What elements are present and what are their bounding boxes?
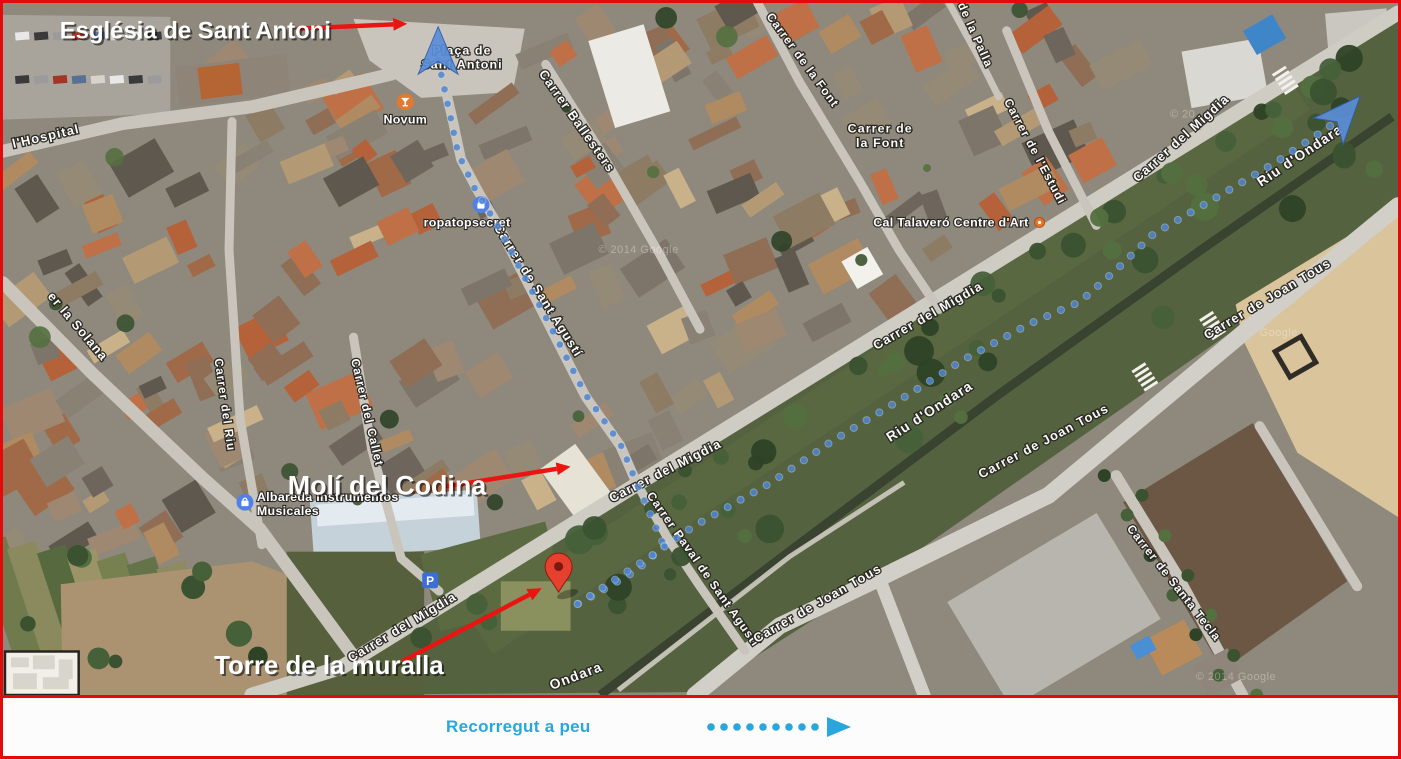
svg-text:P: P (426, 574, 434, 588)
svg-text:Carrer de: Carrer de (848, 122, 913, 136)
svg-text:Musicales: Musicales (257, 504, 319, 518)
drink-icon[interactable] (397, 93, 414, 110)
legend-bar: Recorregut a peu (3, 695, 1398, 756)
place-label-carrer-de-la-font: Carrer dela Font (848, 122, 913, 150)
overview-inset-map[interactable] (5, 652, 79, 695)
shopping-bag-icon[interactable] (236, 494, 253, 511)
svg-text:© 2014 Google: © 2014 Google (598, 244, 678, 256)
svg-text:Google: Google (1260, 327, 1298, 339)
map-viewport[interactable]: © 2014 Google© 20Google© 2014 Googlel'Ho… (3, 3, 1398, 695)
annotation-esglesia: Església de Sant Antoni (60, 18, 331, 45)
dotted-route-arrow-icon (703, 714, 863, 740)
svg-text:Cal Talaveró Centre d'Art: Cal Talaveró Centre d'Art (873, 215, 1028, 229)
gallery-dot-icon[interactable] (1035, 218, 1045, 228)
annotation-torre: Torre de la muralla (214, 652, 444, 680)
svg-text:© 2014 Google: © 2014 Google (1196, 671, 1276, 683)
poi-cal-talaver-centre-d-art[interactable]: Cal Talaveró Centre d'Art (873, 215, 1044, 229)
screenshot-frame: © 2014 Google© 20Google© 2014 Googlel'Ho… (0, 0, 1401, 759)
svg-text:Novum: Novum (383, 113, 427, 127)
annotation-moli: Molí del Codina (288, 470, 488, 500)
legend-arrowhead-icon (827, 717, 851, 737)
satellite-map[interactable]: © 2014 Google© 20Google© 2014 Googlel'Ho… (3, 3, 1398, 695)
parking-icon[interactable]: P (422, 572, 438, 588)
walk-route-label: Recorregut a peu (446, 717, 591, 737)
svg-text:la Font: la Font (856, 136, 904, 150)
